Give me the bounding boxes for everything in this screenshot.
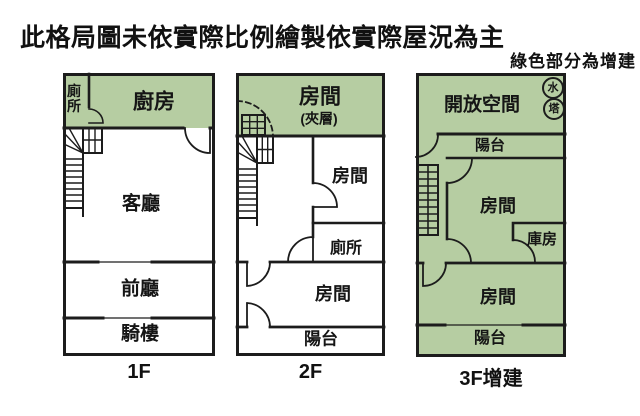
floorplan-3f: 開放空間 水 塔 陽台 房間 庫房 房間 陽台 3F增建 bbox=[416, 73, 566, 357]
room-label-toilet-1f: 廁所 bbox=[67, 84, 85, 115]
floor-label-2f: 2F bbox=[236, 361, 385, 384]
room-label-front-hall: 前廳 bbox=[121, 280, 159, 301]
room-label-storage: 庫房 bbox=[527, 232, 557, 249]
floor-label-1f: 1F bbox=[63, 361, 215, 384]
room-label-balcony-top-3f: 陽台 bbox=[475, 138, 505, 155]
room-label-mezzanine-room: 房間 bbox=[299, 85, 341, 108]
legend-addition-note: 綠色部分為增建 bbox=[510, 47, 636, 72]
room-label-room-bottom-2f: 房間 bbox=[315, 285, 351, 305]
room-label-arcade: 騎樓 bbox=[121, 325, 159, 346]
room-label-room-middle-3f: 房間 bbox=[480, 197, 516, 217]
room-label-balcony-2f: 陽台 bbox=[304, 331, 338, 350]
stairs-1f bbox=[64, 128, 102, 216]
floorplan-2f: 房間 (夾層) 房間 廁所 房間 陽台 2F bbox=[236, 73, 385, 356]
room-label-open-space: 開放空間 bbox=[444, 96, 520, 117]
floorplan-page: 此格局圖未依實際比例繪製依實際屋況為主 綠色部分為增建 bbox=[0, 0, 640, 416]
room-label-room-right-2f: 房間 bbox=[332, 167, 368, 187]
water-tower-label-bottom: 塔 bbox=[549, 103, 560, 115]
doors-2f bbox=[247, 183, 337, 327]
water-tower-label-top: 水 bbox=[548, 82, 559, 94]
room-label-room-bottom-3f: 房間 bbox=[480, 288, 516, 308]
room-label-kitchen: 廚房 bbox=[133, 90, 175, 113]
room-label-mezzanine-note: (夾層) bbox=[300, 111, 337, 126]
stairs-2f bbox=[237, 136, 273, 225]
room-label-toilet-2f: 廁所 bbox=[330, 240, 362, 258]
room-label-balcony-bottom-3f: 陽台 bbox=[474, 330, 506, 348]
floorplan-1f: 廁所 廚房 客廳 前廳 騎樓 1F bbox=[63, 73, 215, 356]
floor-label-3f: 3F增建 bbox=[416, 362, 566, 391]
room-label-living-room: 客廳 bbox=[122, 195, 160, 216]
page-title: 此格局圖未依實際比例繪製依實際屋況為主 bbox=[20, 18, 505, 54]
